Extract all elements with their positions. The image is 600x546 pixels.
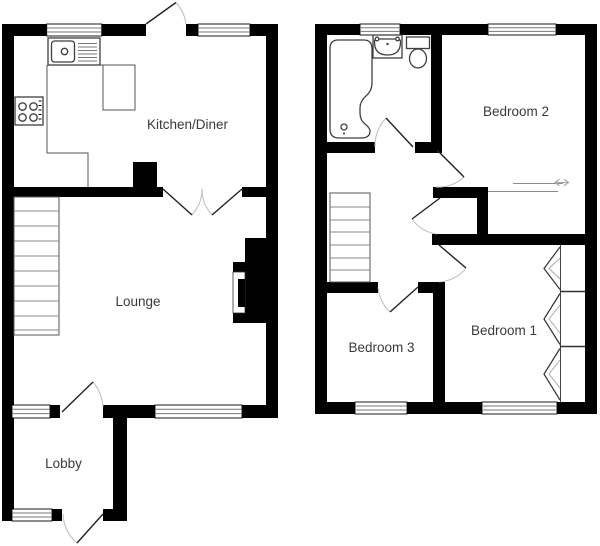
bathroom-door <box>375 118 413 147</box>
lobby-door <box>62 382 103 412</box>
bathroom-window <box>360 24 400 35</box>
hob <box>15 97 43 125</box>
diner-window <box>198 24 250 36</box>
lobby-window <box>12 509 52 521</box>
first-stairs <box>330 193 370 282</box>
lounge-window <box>155 405 242 418</box>
ground-doors <box>62 3 242 544</box>
room-label-bedroom3: Bedroom 3 <box>348 340 414 355</box>
lounge-side-window <box>12 405 50 418</box>
sliding-door-indicator <box>488 179 569 191</box>
ground-stairs <box>14 197 59 335</box>
wash-basin <box>373 35 402 58</box>
room-label-bedroom1: Bedroom 1 <box>471 323 537 338</box>
double-arrow-icon <box>555 179 569 185</box>
bifold-doors-1 <box>544 247 560 290</box>
cupboard-door <box>412 198 440 234</box>
bath <box>330 40 372 138</box>
room-label-lounge: Lounge <box>115 294 160 309</box>
bedroom1-door <box>439 245 466 282</box>
bedroom1-window <box>482 402 557 414</box>
kitchen-double-doors <box>163 189 242 215</box>
kitchen-window <box>47 24 102 36</box>
kitchen-sink <box>48 38 100 65</box>
floorplan: Kitchen/Diner Lounge Lobby <box>0 0 600 546</box>
fireplace <box>233 238 278 323</box>
back-door <box>146 3 186 25</box>
built-in-wardrobes <box>544 245 585 402</box>
first-floor-plan: Bedroom 2 Bedroom 3 Bedroom 1 <box>315 24 597 414</box>
entrance-door <box>63 514 103 543</box>
bedroom3-door <box>378 287 418 312</box>
bifold-doors-2 <box>544 294 560 345</box>
worktop <box>47 65 135 187</box>
bedroom2-door <box>436 150 464 187</box>
room-label-kitchen-diner: Kitchen/Diner <box>147 117 229 132</box>
floorplan-canvas: Kitchen/Diner Lounge Lobby <box>0 0 600 546</box>
toilet <box>407 37 430 68</box>
room-label-lobby: Lobby <box>45 456 82 471</box>
ground-floor-plan: Kitchen/Diner Lounge Lobby <box>2 3 278 544</box>
room-label-bedroom2: Bedroom 2 <box>483 104 549 119</box>
bifold-doors-3 <box>544 349 560 401</box>
first-windows <box>355 24 557 414</box>
bedroom2-window <box>488 24 556 35</box>
bedroom3-window <box>355 402 407 414</box>
